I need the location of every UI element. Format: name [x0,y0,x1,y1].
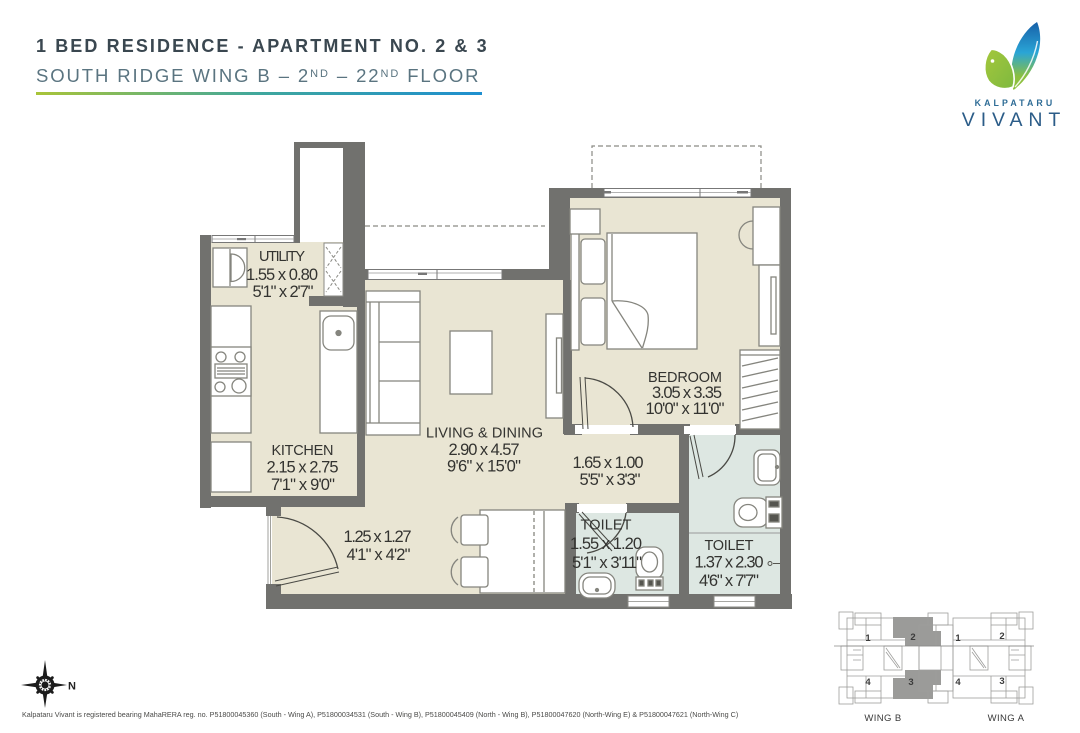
svg-text:SOUTH RIDGE WING B – 2ND – 22N: SOUTH RIDGE WING B – 2ND – 22ND FLOOR [36,65,480,86]
svg-text:7'1" x 9'0": 7'1" x 9'0" [271,476,335,494]
svg-text:Kalpataru Vivant is registered: Kalpataru Vivant is registered bearing M… [22,710,738,719]
svg-text:1.55 x 1.20: 1.55 x 1.20 [570,535,642,553]
svg-text:KITCHEN: KITCHEN [272,443,334,459]
svg-text:1.37 x 2.30: 1.37 x 2.30 [695,554,764,572]
svg-text:3: 3 [999,676,1004,687]
svg-text:2: 2 [910,632,915,643]
svg-text:9'6" x 15'0": 9'6" x 15'0" [447,458,521,476]
svg-text:1: 1 [865,633,871,644]
svg-text:2.15 x 2.75: 2.15 x 2.75 [267,459,339,477]
svg-text:4'1" x 4'2": 4'1" x 4'2" [347,546,411,564]
svg-text:10'0" x 11'0": 10'0" x 11'0" [646,400,725,418]
svg-text:TOILET: TOILET [705,538,754,554]
svg-text:3: 3 [908,677,913,688]
svg-text:1: 1 [955,633,961,644]
svg-text:UTILITY: UTILITY [259,249,305,265]
svg-text:5'5" x 3'3": 5'5" x 3'3" [580,471,641,489]
svg-text:5'1" x 3'11": 5'1" x 3'11" [572,554,642,572]
svg-text:1 BED RESIDENCE - APARTMENT NO: 1 BED RESIDENCE - APARTMENT NO. 2 & 3 [36,36,489,56]
svg-text:2.90 x 4.57: 2.90 x 4.57 [449,441,520,459]
svg-text:1.55 x 0.80: 1.55 x 0.80 [246,266,318,284]
svg-text:WING A: WING A [988,713,1025,724]
svg-text:2: 2 [999,631,1004,642]
svg-text:KALPATARU: KALPATARU [975,98,1056,108]
svg-text:1.25 x 1.27: 1.25 x 1.27 [344,528,412,546]
svg-text:LIVING & DINING: LIVING & DINING [426,426,543,442]
svg-text:1.65 x 1.00: 1.65 x 1.00 [573,454,644,472]
svg-text:4'6" x 7'7": 4'6" x 7'7" [699,572,759,590]
svg-text:VIVANT: VIVANT [962,109,1066,131]
svg-text:N: N [68,681,76,693]
svg-text:TOILET: TOILET [581,518,632,534]
svg-text:5'1" x 2'7": 5'1" x 2'7" [253,283,314,301]
svg-text:WING B: WING B [864,713,901,724]
svg-text:4: 4 [955,677,961,688]
svg-text:4: 4 [865,677,871,688]
